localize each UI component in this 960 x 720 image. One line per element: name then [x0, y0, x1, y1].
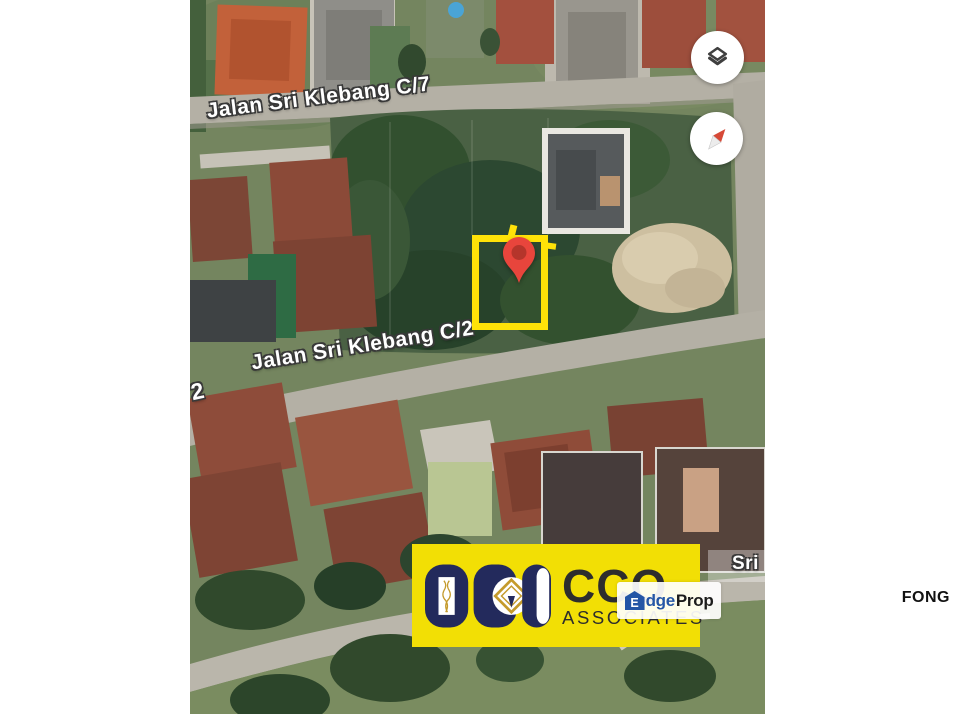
pin-icon	[501, 236, 537, 284]
edgeprop-house-icon: E	[625, 591, 645, 610]
map-viewport[interactable]: Jalan Sri Klebang C/7 Jalan Sri Klebang …	[190, 0, 765, 714]
compass-icon	[701, 123, 733, 155]
cco-logo-mark	[425, 561, 551, 631]
edgeprop-text-dark: Prop	[676, 591, 714, 611]
street-label-sri-partial: Sri	[732, 553, 759, 575]
edgeprop-text-blue: dge	[646, 591, 675, 611]
agent-name-label: FONG	[902, 589, 950, 607]
edgeprop-watermark: E dge Prop	[617, 582, 721, 619]
edgeprop-icon-letter: E	[630, 596, 638, 610]
layers-icon	[704, 44, 731, 71]
compass-button[interactable]	[690, 112, 743, 165]
location-pin[interactable]	[501, 236, 537, 284]
layers-button[interactable]	[691, 31, 744, 84]
